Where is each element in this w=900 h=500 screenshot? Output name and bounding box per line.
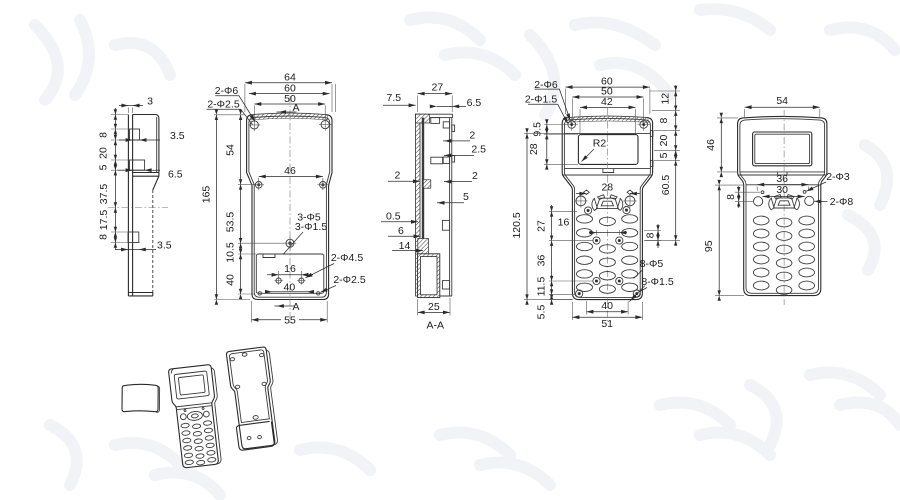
svg-text:2-Φ2.5: 2-Φ2.5 <box>333 274 365 286</box>
svg-text:3.5: 3.5 <box>170 130 185 142</box>
svg-text:R2: R2 <box>593 137 607 149</box>
svg-text:A: A <box>292 301 299 313</box>
svg-text:10.5: 10.5 <box>224 242 236 263</box>
svg-text:36: 36 <box>776 173 788 185</box>
svg-text:8: 8 <box>98 234 110 240</box>
svg-text:2: 2 <box>472 170 478 182</box>
svg-text:7.5: 7.5 <box>386 92 401 104</box>
svg-text:16: 16 <box>558 217 570 229</box>
svg-text:46: 46 <box>705 139 717 151</box>
svg-text:37.5: 37.5 <box>98 184 110 205</box>
svg-text:25: 25 <box>428 301 440 313</box>
svg-text:2: 2 <box>469 130 475 142</box>
svg-text:8: 8 <box>645 232 657 238</box>
svg-text:120.5: 120.5 <box>511 212 523 238</box>
svg-text:40: 40 <box>601 300 613 312</box>
svg-text:2: 2 <box>394 170 400 182</box>
svg-text:12: 12 <box>660 93 672 105</box>
svg-text:28: 28 <box>528 143 540 155</box>
svg-text:5: 5 <box>658 152 670 158</box>
svg-text:95: 95 <box>703 240 715 252</box>
svg-text:2-Φ6: 2-Φ6 <box>215 85 239 97</box>
svg-text:8: 8 <box>98 132 110 138</box>
svg-text:55: 55 <box>284 314 296 326</box>
svg-text:27: 27 <box>432 82 444 94</box>
svg-text:3: 3 <box>147 96 153 108</box>
svg-text:16: 16 <box>284 263 296 275</box>
svg-text:40: 40 <box>284 282 296 294</box>
svg-text:9.5: 9.5 <box>531 122 543 137</box>
svg-text:2-Φ8: 2-Φ8 <box>830 196 854 208</box>
svg-text:8-Φ5: 8-Φ5 <box>640 258 664 270</box>
svg-text:20: 20 <box>658 135 670 147</box>
svg-text:5: 5 <box>463 191 469 203</box>
svg-text:6.5: 6.5 <box>467 97 482 109</box>
svg-text:2-Φ1.5: 2-Φ1.5 <box>525 94 557 106</box>
svg-text:54: 54 <box>776 95 788 107</box>
svg-text:A-A: A-A <box>427 320 445 332</box>
svg-text:8: 8 <box>658 118 670 124</box>
svg-text:3-Φ1.5: 3-Φ1.5 <box>295 221 327 233</box>
svg-text:20: 20 <box>98 147 110 159</box>
svg-text:51: 51 <box>601 318 613 330</box>
svg-text:5: 5 <box>98 164 110 170</box>
svg-text:2-Φ3: 2-Φ3 <box>826 171 850 183</box>
svg-text:8-Φ1.5: 8-Φ1.5 <box>641 276 673 288</box>
svg-text:53.5: 53.5 <box>224 212 236 233</box>
svg-text:17.5: 17.5 <box>98 210 110 231</box>
svg-text:165: 165 <box>200 186 212 204</box>
svg-text:2.5: 2.5 <box>471 143 486 155</box>
svg-text:5.5: 5.5 <box>536 305 548 320</box>
svg-text:60.5: 60.5 <box>660 175 672 196</box>
svg-text:2-Φ2.5: 2-Φ2.5 <box>207 99 239 111</box>
svg-text:11.5: 11.5 <box>536 277 548 297</box>
svg-text:6: 6 <box>398 225 404 237</box>
svg-text:6.5: 6.5 <box>168 169 183 181</box>
svg-text:28: 28 <box>601 182 613 194</box>
svg-text:0.5: 0.5 <box>386 210 401 222</box>
svg-text:54: 54 <box>224 144 236 156</box>
svg-text:27: 27 <box>536 220 548 232</box>
svg-text:3.5: 3.5 <box>157 240 172 252</box>
svg-text:8: 8 <box>725 194 737 200</box>
svg-text:40: 40 <box>224 274 236 286</box>
svg-text:46: 46 <box>284 165 296 177</box>
svg-text:2-Φ4.5: 2-Φ4.5 <box>331 252 363 264</box>
svg-text:30: 30 <box>776 184 788 196</box>
svg-text:36: 36 <box>536 255 548 267</box>
svg-text:14: 14 <box>399 240 411 252</box>
svg-text:42: 42 <box>601 96 613 108</box>
